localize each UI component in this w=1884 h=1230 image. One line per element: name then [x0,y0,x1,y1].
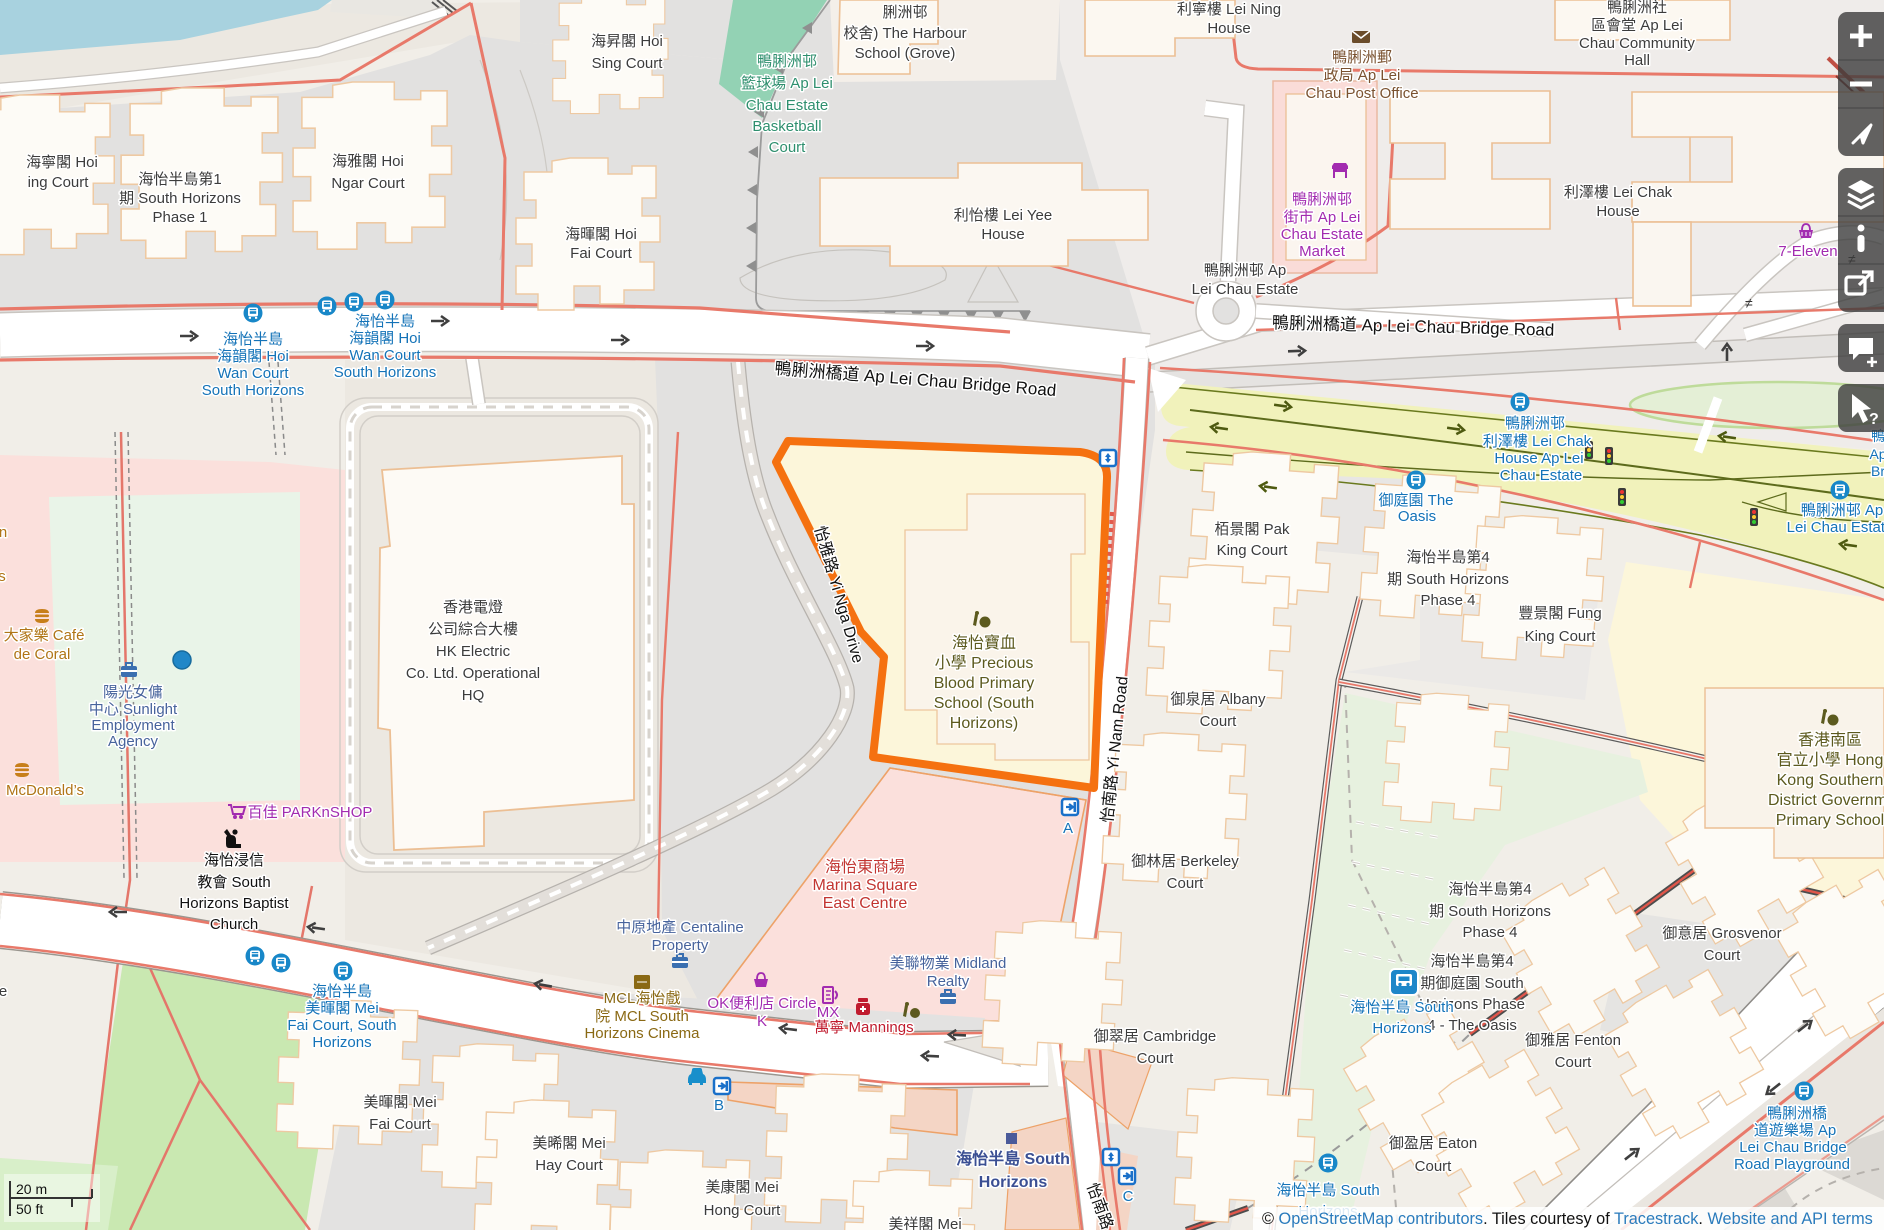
svg-text:香港電燈: 香港電燈 [443,599,503,616]
svg-text:K: K [757,1013,767,1030]
svg-text:n: n [0,524,7,541]
svg-text:鴨脷洲邨 Ap: 鴨脷洲邨 Ap [1801,502,1884,519]
svg-text:Hay Court: Hay Court [535,1157,603,1174]
svg-text:利寧樓 Lei Ning: 利寧樓 Lei Ning [1177,1,1281,18]
svg-text:期 South Horizons: 期 South Horizons [1387,571,1509,588]
svg-text:脷洲邨: 脷洲邨 [882,4,927,21]
svg-text:Phase 4: Phase 4 [1420,592,1475,609]
svg-text:利澤樓 Lei Chak: 利澤樓 Lei Chak [1564,184,1673,201]
svg-text:King Court: King Court [1217,542,1289,559]
svg-text:Fai Court, South: Fai Court, South [287,1017,396,1034]
svg-text:Court: Court [769,139,807,156]
svg-text:Br: Br [1871,463,1884,479]
svg-text:Court: Court [1200,713,1238,730]
svg-text:Horizons): Horizons) [950,715,1018,732]
svg-text:Blood Primary: Blood Primary [934,675,1034,692]
svg-text:鴨脷洲邨: 鴨脷洲邨 [757,53,817,70]
svg-text:Realty: Realty [927,973,970,990]
svg-text:Co. Ltd. Operational: Co. Ltd. Operational [406,665,540,682]
svg-text:中心 Sunlight: 中心 Sunlight [89,701,178,718]
svg-text:官立小學 Hong: 官立小學 Hong [1777,751,1884,769]
svg-text:Horizons: Horizons [1372,1020,1431,1037]
svg-text:利澤樓 Lei Chak: 利澤樓 Lei Chak [1483,433,1592,450]
svg-text:HQ: HQ [462,687,485,704]
svg-text:Marina Square: Marina Square [813,877,918,894]
svg-text:MCL海怡戲: MCL海怡戲 [604,990,681,1007]
svg-text:美聯物業 Midland: 美聯物業 Midland [890,955,1007,972]
svg-text:海暉閣 Hoi: 海暉閣 Hoi [565,226,637,243]
svg-text:鴨脷洲邨 Ap: 鴨脷洲邨 Ap [1204,262,1287,279]
svg-text:香港南區: 香港南區 [1798,731,1862,749]
svg-text:Court: Court [1167,875,1205,892]
svg-text:Hall: Hall [1624,52,1650,69]
svg-text:海寧閣 Hoi: 海寧閣 Hoi [26,154,98,171]
svg-text:B: B [714,1097,724,1114]
svg-text:Phase 4: Phase 4 [1462,924,1517,941]
svg-text:萬寧 Mannings: 萬寧 Mannings [814,1019,913,1036]
svg-text:海怡浸信: 海怡浸信 [204,852,264,869]
svg-text:道遊樂場 Ap: 道遊樂場 Ap [1754,1122,1837,1139]
svg-text:© OpenStreetMap contributors.: © OpenStreetMap contributors. Tiles cour… [1262,1210,1873,1228]
svg-text:House Ap Lei: House Ap Lei [1494,450,1583,467]
svg-text:海韻閣 Hoi: 海韻閣 Hoi [349,330,421,347]
svg-text:Basketball: Basketball [752,118,821,135]
svg-text:大家樂 Café: 大家樂 Café [4,627,85,644]
svg-text:海怡東商場: 海怡東商場 [825,858,905,876]
svg-text:Horizons: Horizons [312,1034,371,1051]
svg-text:Agency: Agency [108,733,159,750]
svg-text:?: ? [1869,411,1879,428]
svg-text:≠: ≠ [1745,295,1753,311]
svg-text:Chau Post Office: Chau Post Office [1305,85,1418,102]
svg-text:King Court: King Court [1525,628,1597,645]
svg-text:利怡樓 Lei Yee: 利怡樓 Lei Yee [954,207,1052,224]
svg-text:Wan Court: Wan Court [349,347,421,364]
svg-text:海怡半島: 海怡半島 [355,313,415,330]
svg-text:公司綜合大樓: 公司綜合大樓 [428,621,518,638]
svg-text:Fai Court: Fai Court [570,245,633,262]
svg-text:Lei Chau Bridge: Lei Chau Bridge [1739,1139,1847,1156]
svg-text:御庭園 The: 御庭園 The [1378,492,1453,509]
svg-text:Horizons: Horizons [979,1174,1048,1191]
svg-text:House: House [1207,20,1250,37]
svg-text:小學 Precious: 小學 Precious [935,654,1034,672]
svg-text:海怡半島第4: 海怡半島第4 [1430,952,1513,970]
svg-text:OK便利店 Circle: OK便利店 Circle [707,995,816,1012]
svg-text:海怡半島: 海怡半島 [223,331,283,348]
svg-text:御意居 Grosvenor: 御意居 Grosvenor [1662,924,1781,942]
svg-text:Kong Southern: Kong Southern [1777,772,1884,789]
svg-text:Employment: Employment [91,717,175,734]
svg-text:海怡半島第4: 海怡半島第4 [1406,548,1489,566]
svg-text:Property: Property [652,937,709,954]
svg-text:海昇閣 Hoi: 海昇閣 Hoi [591,33,663,50]
svg-text:御雅居 Fenton: 御雅居 Fenton [1525,1032,1621,1049]
svg-text:籃球場 Ap Lei: 籃球場 Ap Lei [741,74,833,92]
svg-text:Court: Court [1704,947,1742,964]
svg-text:政局 Ap Lei: 政局 Ap Lei [1324,67,1401,84]
svg-text:4 - The Oasis: 4 - The Oasis [1427,1017,1517,1034]
svg-text:御泉居 Albany: 御泉居 Albany [1170,691,1266,708]
svg-text:教會 South: 教會 South [197,874,270,891]
svg-text:海怡半島 South: 海怡半島 South [956,1149,1070,1168]
svg-text:South Horizons: South Horizons [202,382,305,399]
svg-text:Road Playground: Road Playground [1734,1156,1850,1173]
svg-text:7-Eleven: 7-Eleven [1778,243,1837,260]
svg-text:御林居 Berkeley: 御林居 Berkeley [1131,853,1239,870]
svg-text:鴨脷洲社: 鴨脷洲社 [1607,0,1667,16]
svg-text:陽光女傭: 陽光女傭 [103,683,163,701]
svg-text:Chau Estate: Chau Estate [1281,226,1364,243]
svg-text:Wan Court: Wan Court [217,365,289,382]
svg-text:South Horizons: South Horizons [334,364,437,381]
svg-text:期 South Horizons: 期 South Horizons [1429,903,1551,920]
svg-text:Phase 1: Phase 1 [152,209,207,226]
svg-text:East Centre: East Centre [823,895,908,912]
svg-text:Lei Chau Estate: Lei Chau Estate [1192,281,1299,298]
svg-text:Ap: Ap [1869,446,1884,462]
svg-text:Chau Estate: Chau Estate [1500,467,1583,484]
svg-text:Chau Estate: Chau Estate [746,97,829,114]
svg-text:鴨脷洲邨: 鴨脷洲邨 [1505,415,1565,432]
svg-text:街市 Ap Lei: 街市 Ap Lei [1284,209,1361,226]
svg-text:海怡半島 South: 海怡半島 South [1350,999,1453,1016]
svg-text:School (Grove): School (Grove) [855,45,956,62]
svg-text:期御庭園 South: 期御庭園 South [1420,975,1523,992]
svg-text:豐景閣 Fung: 豐景閣 Fung [1518,605,1601,622]
svg-text:District Governme: District Governme [1768,792,1884,809]
svg-text:School (South: School (South [934,695,1035,712]
svg-text:de Coral: de Coral [14,646,71,663]
svg-text:海怡半島第1: 海怡半島第1 [138,170,221,188]
svg-text:海怡寶血: 海怡寶血 [952,633,1016,652]
svg-text:Fai Court: Fai Court [369,1116,432,1133]
svg-text:e: e [0,983,7,1000]
svg-text:百佳 PARKnSHOP: 百佳 PARKnSHOP [248,804,373,821]
svg-text:Court: Court [1137,1050,1175,1067]
svg-text:Court: Court [1555,1054,1593,1071]
svg-text:Chau Community: Chau Community [1579,35,1695,52]
svg-text:McDonald’s: McDonald’s [6,782,84,799]
svg-text:A: A [1063,820,1073,837]
svg-text:Ngar Court: Ngar Court [331,175,405,192]
svg-text:House: House [1596,203,1639,220]
svg-text:校舍) The Harbour: 校舍) The Harbour [843,25,966,42]
svg-text:海怡半島: 海怡半島 [312,983,372,1000]
svg-text:期 South Horizons: 期 South Horizons [119,190,241,207]
svg-text:Horizons Baptist: Horizons Baptist [179,895,289,912]
svg-text:海怡半島 South: 海怡半島 South [1276,1182,1379,1199]
svg-text:院 MCL South: 院 MCL South [595,1007,689,1025]
svg-text:栢景閣 Pak: 栢景閣 Pak [1214,521,1290,538]
svg-text:御翠居 Cambridge: 御翠居 Cambridge [1094,1028,1217,1045]
svg-text:House: House [981,226,1024,243]
svg-text:鴨脷洲郵: 鴨脷洲郵 [1332,49,1392,66]
svg-text:Church: Church [210,916,258,933]
svg-text:中原地產 Centaline: 中原地產 Centaline [616,919,744,936]
svg-text:海雅閣 Hoi: 海雅閣 Hoi [332,153,404,170]
svg-text:50 ft: 50 ft [16,1201,43,1217]
svg-text:御盈居 Eaton: 御盈居 Eaton [1389,1135,1477,1152]
svg-text:C: C [1123,1188,1134,1205]
svg-text:鴨脷洲邨: 鴨脷洲邨 [1292,191,1352,208]
svg-text:美晞閣 Mei: 美晞閣 Mei [532,1135,605,1152]
svg-text:美祥閣 Mei: 美祥閣 Mei [888,1216,961,1230]
svg-text:Lei Chau Estate: Lei Chau Estate [1787,519,1884,536]
svg-text:Court: Court [1415,1158,1453,1175]
svg-text:Primary School: Primary School [1776,812,1884,829]
svg-text:Horizons Cinema: Horizons Cinema [584,1025,700,1042]
svg-text:鴨脷洲橋: 鴨脷洲橋 [1767,1105,1827,1122]
svg-text:Market: Market [1299,243,1346,260]
svg-text:s: s [0,568,6,585]
svg-text:美康閣 Mei: 美康閣 Mei [705,1179,778,1196]
svg-text:Oasis: Oasis [1398,508,1436,525]
svg-text:海韻閣 Hoi: 海韻閣 Hoi [217,348,289,365]
svg-text:ing Court: ing Court [28,174,90,191]
svg-text:區會堂 Ap Lei: 區會堂 Ap Lei [1591,17,1683,34]
svg-text:Hong Court: Hong Court [704,1202,782,1219]
svg-text:美暉閣 Mei: 美暉閣 Mei [305,1000,378,1017]
svg-text:20 m: 20 m [16,1181,47,1197]
svg-text:HK Electric: HK Electric [436,643,511,660]
svg-text:美暉閣 Mei: 美暉閣 Mei [363,1094,436,1111]
svg-text:海怡半島第4: 海怡半島第4 [1448,880,1531,898]
svg-text:Sing Court: Sing Court [592,55,664,72]
